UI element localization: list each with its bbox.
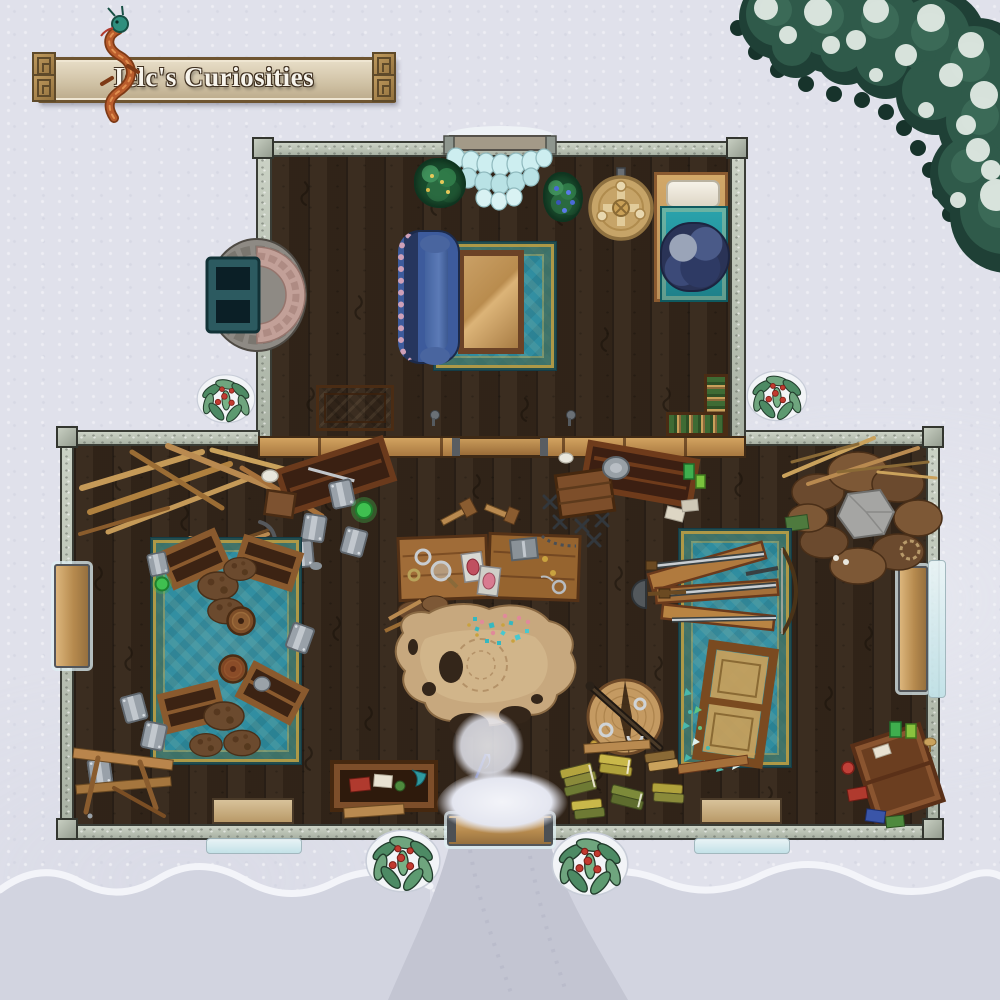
bed-pillow xyxy=(666,180,720,208)
interior-door xyxy=(458,438,542,456)
window-ice-glow xyxy=(206,838,302,854)
potted-plant-blue-flowers xyxy=(543,172,583,222)
couch xyxy=(398,230,460,364)
holly-bush xyxy=(194,370,258,430)
storage-chest xyxy=(316,385,394,431)
holly-bush xyxy=(744,366,810,428)
wall-peg xyxy=(564,410,574,426)
snow-drift-and-path xyxy=(0,820,1000,1000)
interior-door-hinge xyxy=(452,438,460,456)
broken-display-case xyxy=(678,642,790,774)
wall-peg xyxy=(428,410,438,426)
junk-heap xyxy=(778,432,940,600)
battle-map-scene: Ielc's Curiosities xyxy=(0,0,1000,1000)
collapsed-table xyxy=(68,736,186,822)
scattered-metal-tome xyxy=(284,618,320,660)
crate-of-books xyxy=(324,748,448,822)
shop-window-south-left xyxy=(212,798,294,824)
fallen-weapon-rack xyxy=(636,532,800,644)
broken-crate-spilled-goods xyxy=(838,718,946,830)
stacked-books-piles xyxy=(558,740,690,824)
wall-shield xyxy=(588,168,654,242)
snowy-pine-tree xyxy=(726,0,1000,240)
interior-door-hinge xyxy=(540,438,548,456)
bookshelf-horizontal xyxy=(666,412,726,436)
holly-bush xyxy=(548,826,632,902)
toppled-shelf-and-crate xyxy=(556,446,708,541)
shop-window-south-right xyxy=(700,798,782,824)
snow-drift-indoors-trail xyxy=(452,710,524,782)
window-ice-glow xyxy=(694,838,790,854)
potted-plant-green xyxy=(414,158,466,208)
shop-door-west xyxy=(54,564,90,668)
fireplace xyxy=(205,236,307,354)
dragon-ornament xyxy=(84,6,146,122)
living-room-table xyxy=(458,250,524,354)
holly-bush xyxy=(362,824,444,896)
wrecked-shelves-cluster-upper xyxy=(148,536,304,640)
wall-corner xyxy=(252,137,274,159)
